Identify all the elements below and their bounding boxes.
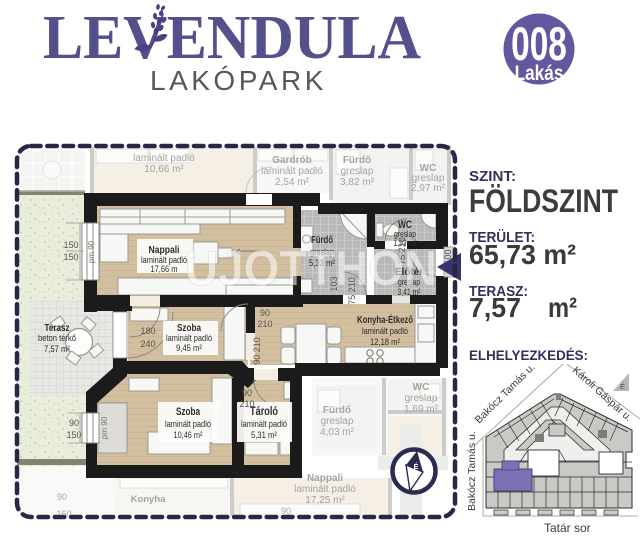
svg-text:Nappali: Nappali xyxy=(307,473,343,484)
svg-text:Tatár sor: Tatár sor xyxy=(544,521,591,535)
svg-text:150: 150 xyxy=(63,252,78,262)
svg-text:210: 210 xyxy=(257,319,272,329)
svg-text:2,97 m²: 2,97 m² xyxy=(411,183,446,194)
svg-text:1,69 m²: 1,69 m² xyxy=(404,404,439,415)
svg-text:7,57: 7,57 xyxy=(469,292,521,323)
svg-text:FÖLDSZINT: FÖLDSZINT xyxy=(469,183,618,219)
svg-text:laminált padló: laminált padló xyxy=(241,419,287,429)
svg-text:pm 90: pm 90 xyxy=(87,240,96,263)
svg-text:Szoba: Szoba xyxy=(176,406,201,418)
svg-text:laminált padló: laminált padló xyxy=(133,153,195,164)
svg-text:LEVENDULA: LEVENDULA xyxy=(43,4,421,72)
svg-text:90: 90 xyxy=(281,506,291,516)
svg-text:3,82 m²: 3,82 m² xyxy=(340,177,375,188)
svg-text:9,45 m²: 9,45 m² xyxy=(176,343,202,354)
svg-text:beton térkő: beton térkő xyxy=(38,333,76,344)
svg-text:Lakás: Lakás xyxy=(515,63,564,86)
svg-text:17,66 m: 17,66 m xyxy=(151,264,178,274)
svg-text:greslap: greslap xyxy=(405,393,438,404)
svg-text:Bakócz Tamás u.: Bakócz Tamás u. xyxy=(466,431,478,511)
svg-text:laminált padló: laminált padló xyxy=(165,419,211,430)
svg-text:ELHELYEZKEDÉS:: ELHELYEZKEDÉS: xyxy=(469,347,588,363)
svg-text:90 210: 90 210 xyxy=(252,337,262,365)
svg-text:laminált padló: laminált padló xyxy=(362,326,408,337)
svg-text:Fürdő: Fürdő xyxy=(343,155,371,166)
svg-text:10,46 m²: 10,46 m² xyxy=(174,430,203,441)
svg-text:LAKÓPARK: LAKÓPARK xyxy=(150,65,327,96)
svg-text:2,54 m²: 2,54 m² xyxy=(275,177,310,188)
svg-text:5,31 m²: 5,31 m² xyxy=(251,430,277,441)
svg-text:12,18 m²: 12,18 m² xyxy=(370,337,400,348)
svg-text:pm 90: pm 90 xyxy=(100,416,109,439)
svg-text:Fürdő: Fürdő xyxy=(323,405,351,416)
svg-text:Konyha-Étkező: Konyha-Étkező xyxy=(357,313,413,326)
svg-text:90: 90 xyxy=(69,418,79,428)
svg-text:4,03 m²: 4,03 m² xyxy=(320,427,355,438)
svg-text:240: 240 xyxy=(140,339,155,349)
svg-text:laminált padló: laminált padló xyxy=(294,484,356,495)
svg-text:Gardrób: Gardrób xyxy=(272,155,311,166)
svg-text:90: 90 xyxy=(57,492,67,502)
svg-text:90: 90 xyxy=(260,308,270,318)
svg-text:greslap: greslap xyxy=(321,416,354,427)
svg-text:180: 180 xyxy=(140,326,155,336)
svg-text:m²: m² xyxy=(548,292,577,323)
svg-text:17,25 m²: 17,25 m² xyxy=(305,495,345,506)
svg-text:90: 90 xyxy=(242,388,252,398)
svg-text:210: 210 xyxy=(239,399,254,409)
svg-text:laminált padló: laminált padló xyxy=(261,166,323,177)
svg-text:É: É xyxy=(413,462,418,471)
svg-text:150: 150 xyxy=(63,240,78,250)
svg-text:Konyha: Konyha xyxy=(131,494,167,505)
svg-text:WC: WC xyxy=(413,382,430,393)
svg-text:UJOTTHON: UJOTTHON xyxy=(185,242,437,296)
svg-text:65,73 m²: 65,73 m² xyxy=(469,239,576,270)
svg-text:7,57 m²: 7,57 m² xyxy=(44,344,70,355)
svg-text:É: É xyxy=(620,382,625,391)
svg-text:greslap: greslap xyxy=(341,166,374,177)
svg-text:10,66 m²: 10,66 m² xyxy=(144,164,184,175)
svg-text:150: 150 xyxy=(66,430,81,440)
